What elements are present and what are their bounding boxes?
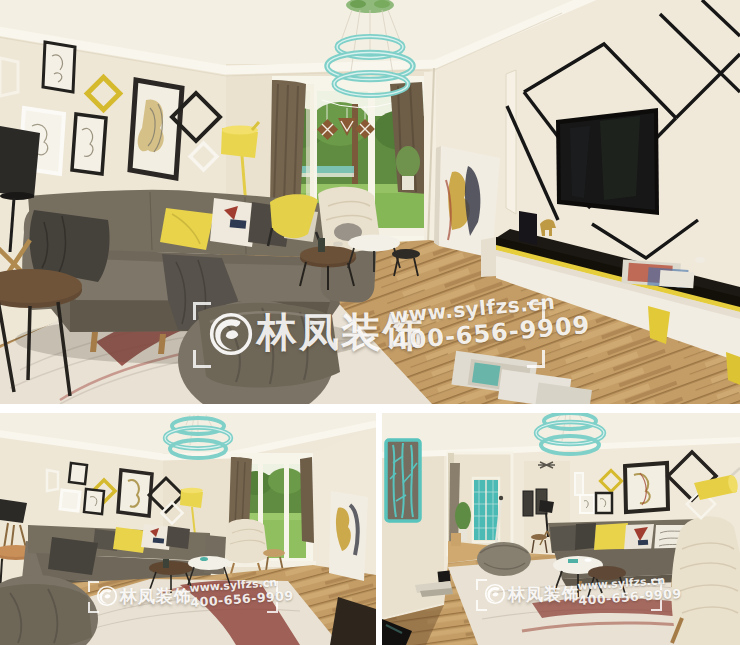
table-books <box>568 559 578 563</box>
crop-mark-icon <box>527 350 545 368</box>
linfeng-logo-icon <box>484 583 506 605</box>
pillow-yellow <box>113 527 147 553</box>
picture-frame-black <box>72 114 106 174</box>
potted-plant <box>455 502 471 530</box>
watermark-brand: 林凤装饰 <box>120 586 192 606</box>
panel-living-room-entry: 林凤装饰 www.sylfzs.cn 400-656-9909 <box>382 413 740 645</box>
table-vase <box>318 238 325 252</box>
watermark: 林凤装饰 www.sylfzs.cn 400-656-9909 <box>476 579 662 611</box>
ottoman-curved <box>477 542 531 576</box>
hall-stool <box>451 533 461 546</box>
linfeng-logo-icon <box>208 311 254 357</box>
panel-living-room-wide: 林凤装饰 www.sylfzs.cn 400-656-9909 <box>0 413 376 645</box>
indoor-plant <box>396 146 420 178</box>
lounge-chair <box>671 516 740 645</box>
teal-branch-screen <box>386 440 420 521</box>
tv-stand-leg <box>648 306 670 344</box>
teal-french-doors <box>473 478 499 542</box>
photo-collage: 林凤装饰 www.sylfzs.cn 400-656-9909 <box>0 0 740 645</box>
throw-blanket <box>48 537 98 575</box>
abstract-painting <box>329 491 368 581</box>
tv <box>556 108 659 215</box>
curtain-right <box>300 457 314 543</box>
panel-living-room-main: 林凤装饰 www.sylfzs.cn 400-656-9909 <box>0 0 740 404</box>
speaker-box <box>519 211 537 245</box>
nook-floor-lamp <box>539 500 554 513</box>
pillow-yellow <box>594 523 628 550</box>
garden-bench <box>296 166 354 173</box>
wall-mirror <box>523 491 533 516</box>
floor-speaker <box>438 570 451 582</box>
watermark: 林凤装饰 www.sylfzs.cn 400-656-9909 <box>193 302 545 368</box>
watermark: 林凤装饰 www.sylfzs.cn 400-656-9909 <box>88 581 278 613</box>
linfeng-logo-icon <box>96 585 118 607</box>
picture-frame-black <box>43 42 75 92</box>
watermark-brand: 林凤装饰 <box>508 584 580 604</box>
